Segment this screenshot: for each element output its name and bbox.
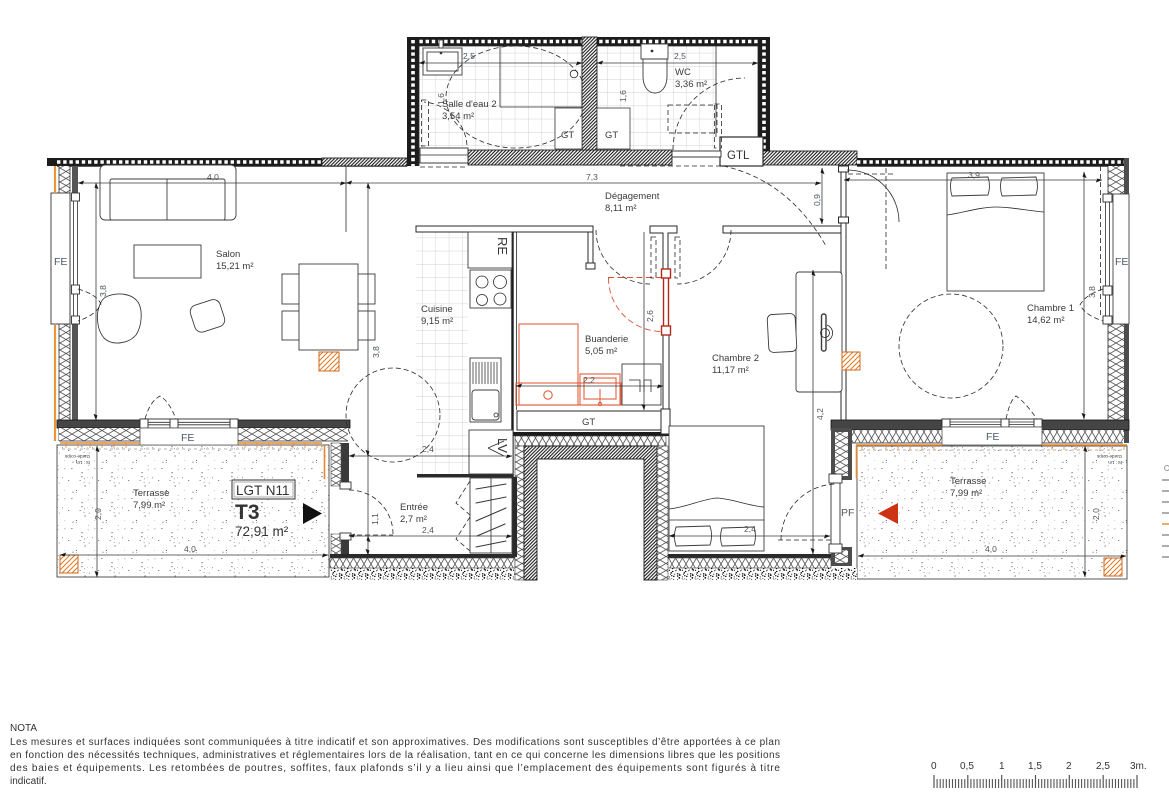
svg-text:3m.: 3m. xyxy=(1130,761,1147,772)
svg-text:FE: FE xyxy=(54,256,67,268)
svg-text:Cuisine: Cuisine xyxy=(421,304,453,315)
svg-text:2,4: 2,4 xyxy=(744,524,756,534)
svg-text:Buanderie: Buanderie xyxy=(585,334,628,345)
svg-text:1,1: 1,1 xyxy=(370,513,380,525)
svg-text:FE: FE xyxy=(986,431,999,443)
svg-text:T3: T3 xyxy=(235,501,260,524)
svg-text:GT: GT xyxy=(561,130,574,141)
svg-text:GTL: GTL xyxy=(727,150,750,162)
svg-text:2,2: 2,2 xyxy=(583,375,595,385)
svg-text:0: 0 xyxy=(931,761,937,772)
svg-text:Terrasse: Terrasse xyxy=(133,488,169,499)
svg-text:2,0: 2,0 xyxy=(1091,508,1101,520)
svg-text:LGT N11: LGT N11 xyxy=(236,483,290,498)
svg-text:0,5: 0,5 xyxy=(960,761,974,772)
svg-text:Entrée: Entrée xyxy=(400,502,428,513)
svg-text:Chambre 1: Chambre 1 xyxy=(1027,303,1074,314)
svg-text:7,3: 7,3 xyxy=(586,172,598,182)
svg-text:11,17 m²: 11,17 m² xyxy=(712,365,749,376)
svg-text:2: 2 xyxy=(1066,761,1072,772)
svg-text:2,5: 2,5 xyxy=(1096,761,1110,772)
svg-text:WC: WC xyxy=(675,67,691,78)
svg-text:Garde-corps: Garde-corps xyxy=(1096,454,1122,459)
svg-text:ht : 1m: ht : 1m xyxy=(1108,460,1122,465)
svg-text:des baies et équipements. Les: des baies et équipements. Les retombées … xyxy=(10,763,780,774)
svg-text:indicatif.: indicatif. xyxy=(10,776,47,787)
svg-text:9,15 m²: 9,15 m² xyxy=(421,316,453,327)
svg-text:Chambre 2: Chambre 2 xyxy=(712,353,759,364)
svg-text:2,4: 2,4 xyxy=(422,525,434,535)
svg-text:8,11 m²: 8,11 m² xyxy=(605,203,637,214)
svg-text:Les mesures et surfaces indiqu: Les mesures et surfaces indiquées sont c… xyxy=(10,737,780,748)
svg-text:4,0: 4,0 xyxy=(184,544,196,554)
svg-text:72,91 m²: 72,91 m² xyxy=(235,524,289,539)
svg-text:4,0: 4,0 xyxy=(985,544,997,554)
svg-text:NOTA: NOTA xyxy=(10,723,37,734)
svg-text:2,6: 2,6 xyxy=(645,310,655,322)
svg-text:4,0: 4,0 xyxy=(207,172,219,182)
svg-text:1,6: 1,6 xyxy=(618,90,628,102)
svg-text:2,7 m²: 2,7 m² xyxy=(400,514,427,525)
svg-text:14,62 m²: 14,62 m² xyxy=(1027,315,1065,326)
svg-text:2,5: 2,5 xyxy=(674,51,686,61)
svg-text:FE: FE xyxy=(1115,256,1128,268)
svg-text:3,36 m²: 3,36 m² xyxy=(675,79,707,90)
svg-text:0,9: 0,9 xyxy=(812,194,822,206)
svg-text:RE: RE xyxy=(495,237,510,255)
svg-text:Terrasse: Terrasse xyxy=(950,476,986,487)
svg-text:LV: LV xyxy=(495,438,510,453)
svg-text:Salon: Salon xyxy=(216,249,240,260)
svg-text:3,54 m²: 3,54 m² xyxy=(442,111,474,122)
svg-text:2,4: 2,4 xyxy=(422,444,434,454)
svg-text:7,99 m²: 7,99 m² xyxy=(133,500,165,511)
svg-text:1: 1 xyxy=(999,761,1005,772)
svg-text:7,99 m²: 7,99 m² xyxy=(950,488,982,499)
svg-text:3,9: 3,9 xyxy=(968,170,980,180)
svg-text:PF: PF xyxy=(841,507,854,519)
svg-text:GT: GT xyxy=(605,130,618,141)
svg-text:en fonction des nécessités tec: en fonction des nécessités techniques, a… xyxy=(10,750,780,761)
svg-text:15,21 m²: 15,21 m² xyxy=(216,261,254,272)
svg-text:Dégagement: Dégagement xyxy=(605,191,660,202)
svg-text:3,8: 3,8 xyxy=(371,346,381,358)
svg-text:5,05 m²: 5,05 m² xyxy=(585,346,617,357)
svg-text:Garde-corps: Garde-corps xyxy=(64,454,90,459)
svg-text:2,0: 2,0 xyxy=(93,508,103,520)
svg-text:ht : 1m: ht : 1m xyxy=(76,460,90,465)
svg-text:FE: FE xyxy=(181,432,194,444)
svg-text:Salle d'eau 2: Salle d'eau 2 xyxy=(442,99,497,110)
svg-text:2,5: 2,5 xyxy=(463,51,475,61)
svg-text:GT: GT xyxy=(582,417,595,428)
svg-text:3,8: 3,8 xyxy=(98,285,108,297)
svg-text:4,2: 4,2 xyxy=(815,408,825,420)
svg-text:3,8: 3,8 xyxy=(1087,286,1097,298)
svg-text:1,5: 1,5 xyxy=(1028,761,1042,772)
